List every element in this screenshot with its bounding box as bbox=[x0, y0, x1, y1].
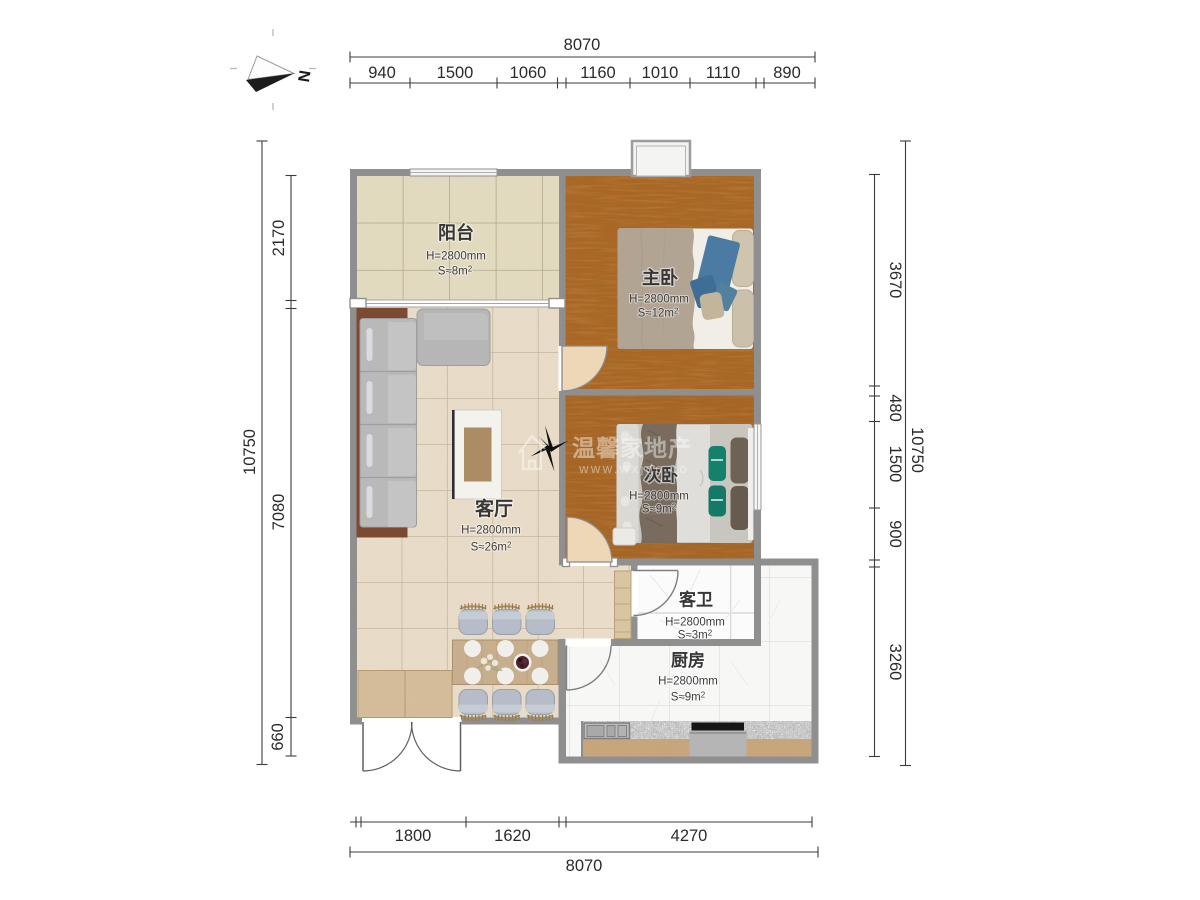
svg-text:S≈9m2: S≈9m2 bbox=[642, 503, 677, 516]
svg-text:1110: 1110 bbox=[706, 64, 740, 82]
svg-text:3260: 3260 bbox=[886, 644, 904, 681]
svg-text:8070: 8070 bbox=[566, 857, 603, 875]
svg-text:S≈12m2: S≈12m2 bbox=[638, 307, 679, 320]
svg-text:900: 900 bbox=[886, 520, 904, 548]
svg-text:1160: 1160 bbox=[580, 64, 615, 82]
svg-text:阳台: 阳台 bbox=[438, 222, 474, 243]
svg-text:H=2800mm: H=2800mm bbox=[665, 617, 725, 629]
svg-text:1010: 1010 bbox=[642, 64, 679, 82]
svg-text:H=2800mm: H=2800mm bbox=[426, 251, 486, 263]
svg-text:厨房: 厨房 bbox=[671, 650, 705, 670]
svg-text:S≈26m2: S≈26m2 bbox=[471, 541, 512, 554]
svg-text:H=2800mm: H=2800mm bbox=[461, 525, 521, 537]
svg-text:主卧: 主卧 bbox=[642, 267, 678, 288]
svg-text:S≈9m2: S≈9m2 bbox=[671, 691, 706, 704]
svg-text:1620: 1620 bbox=[494, 827, 531, 845]
svg-text:7080: 7080 bbox=[270, 494, 288, 531]
svg-text:1060: 1060 bbox=[510, 64, 547, 82]
svg-text:S≈8m2: S≈8m2 bbox=[438, 265, 473, 278]
svg-text:940: 940 bbox=[368, 64, 396, 82]
svg-text:660: 660 bbox=[269, 723, 287, 751]
svg-text:1500: 1500 bbox=[437, 64, 474, 82]
svg-text:3670: 3670 bbox=[886, 262, 904, 299]
svg-text:S≈3m2: S≈3m2 bbox=[678, 629, 713, 642]
svg-text:10750: 10750 bbox=[908, 427, 926, 473]
svg-text:客卫: 客卫 bbox=[678, 590, 713, 610]
svg-text:www.wxjdc.co: www.wxjdc.co bbox=[578, 461, 689, 476]
svg-text:890: 890 bbox=[773, 64, 801, 82]
svg-text:10750: 10750 bbox=[241, 429, 259, 475]
svg-text:N: N bbox=[294, 69, 313, 83]
svg-text:480: 480 bbox=[886, 394, 904, 422]
svg-text:H=2800mm: H=2800mm bbox=[629, 491, 689, 503]
svg-text:H=2800mm: H=2800mm bbox=[629, 294, 689, 306]
svg-text:客厅: 客厅 bbox=[475, 497, 513, 520]
svg-text:1800: 1800 bbox=[395, 827, 432, 845]
svg-text:温馨家地产: 温馨家地产 bbox=[572, 435, 692, 461]
svg-text:1500: 1500 bbox=[886, 446, 904, 483]
svg-text:4270: 4270 bbox=[671, 827, 708, 845]
svg-text:2170: 2170 bbox=[270, 220, 288, 257]
svg-text:8070: 8070 bbox=[564, 36, 601, 54]
svg-text:H=2800mm: H=2800mm bbox=[658, 676, 718, 688]
